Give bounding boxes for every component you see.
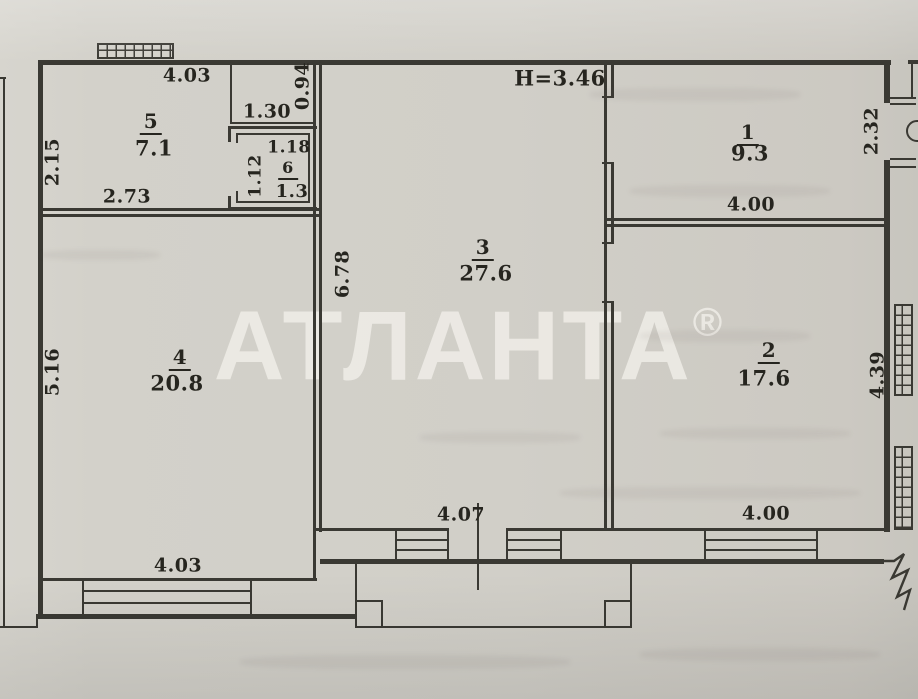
dim-room3-height: 6.78 (334, 250, 353, 298)
window-jamb (816, 528, 818, 564)
wall-notch-horizontal (0, 626, 38, 628)
window-glass-line (706, 549, 816, 551)
window-glass-line (508, 539, 560, 541)
room6-number: 6 (278, 160, 298, 180)
scan-smudge (420, 432, 580, 443)
window-glass-line (397, 539, 447, 541)
wall-leftcol-room3-a (313, 62, 316, 580)
room5-number: 5 (140, 111, 162, 135)
room3-number: 3 (472, 237, 494, 261)
scan-smudge (560, 487, 860, 499)
door-knob-symbol (906, 120, 918, 142)
dim-room4-bottom: 4.03 (154, 557, 202, 576)
scan-smudge (40, 250, 160, 260)
window-glass-line (84, 602, 250, 604)
dim-room6-width: 1.18 (267, 140, 310, 157)
watermark-text: АТЛАНТА (214, 291, 693, 401)
room6-wall-top (228, 126, 317, 129)
dim-room5-bottom: 2.73 (103, 188, 151, 207)
niche-left-line (230, 64, 232, 124)
wall-top-right-ext (908, 60, 918, 64)
wall-bottom-inner-b (506, 528, 884, 531)
window-glass-line (706, 539, 816, 541)
wall-room56-room4-b (41, 214, 321, 217)
right-window-stub (890, 103, 916, 105)
wall-right-lower (884, 160, 890, 532)
room6-inner-top (236, 133, 310, 135)
room3-area: 27.6 (459, 263, 512, 284)
dim-room6-height: 1.12 (248, 154, 265, 197)
dim-room3-bottom: 4.07 (437, 506, 485, 525)
dim-room1-right: 2.32 (863, 107, 882, 155)
neighbor-wall-vertical (3, 78, 5, 628)
ceiling-height-note: H=3.46 (514, 68, 606, 89)
room2-number: 2 (758, 340, 780, 364)
scan-smudge (590, 88, 800, 101)
room6-wall-left-upper (228, 126, 231, 142)
neighbor-wall-tick (0, 77, 6, 79)
room4-area: 20.8 (150, 373, 203, 394)
room2-area: 17.6 (737, 368, 790, 389)
balcony-bottom-edge (355, 626, 632, 628)
window-jamb (395, 528, 397, 564)
floor-plan-scan: АТЛАНТА® (0, 0, 918, 699)
scan-smudge (240, 655, 570, 669)
room5-area: 7.1 (135, 138, 173, 159)
wall-room3-rooms12-right-b (611, 163, 614, 243)
door-jamb-tick (602, 301, 614, 303)
room4-number: 4 (169, 347, 191, 371)
balcony-post-left (355, 600, 383, 628)
scan-smudge (630, 185, 830, 197)
vent-shaft-hatch (97, 43, 174, 59)
dim-top-width: 4.03 (163, 67, 211, 86)
door-jamb-tick (602, 162, 614, 164)
room6-area: 1.3 (276, 183, 309, 201)
scan-smudge (660, 428, 850, 439)
glazing-strip-upper (894, 304, 913, 396)
window-jamb (447, 528, 449, 564)
scan-smudge (640, 648, 880, 661)
right-window-stub (890, 158, 916, 160)
room6-inner-left-lower (236, 191, 238, 203)
dim-niche-depth: 0.94 (294, 62, 313, 110)
room1-area: 9.3 (731, 143, 769, 164)
right-window-stub (890, 166, 916, 168)
room6-wall-bottom (228, 207, 317, 210)
wall-room1-room2-a (607, 218, 884, 221)
window-glass-line (84, 590, 250, 592)
glazing-strip-lower (894, 446, 913, 530)
dim-room1-bottom: 4.00 (727, 196, 775, 215)
dim-room4-left: 5.16 (44, 348, 63, 396)
window-jamb (82, 578, 84, 619)
wall-bottom-inner-a (315, 528, 449, 531)
right-attachment-vertical (911, 60, 913, 99)
wall-room1-room2-b (607, 224, 884, 227)
wall-bottom-outer-left (36, 614, 357, 619)
window-jamb (560, 528, 562, 564)
agency-watermark: АТЛАНТА® (214, 290, 723, 403)
window-jamb (704, 528, 706, 564)
dim-room2-bottom: 4.00 (742, 505, 790, 524)
dim-niche-width: 1.30 (243, 103, 291, 122)
room6-inner-left-upper (236, 133, 238, 143)
wall-leftcol-room3-b (319, 62, 322, 532)
window-jamb (250, 578, 252, 619)
balcony-post-right (604, 600, 632, 628)
window-glass-line (397, 549, 447, 551)
dim-room5-left: 2.15 (44, 138, 63, 186)
wall-bottom-outer-right (320, 559, 884, 564)
dim-room2-right: 4.39 (869, 351, 888, 399)
wall-room3-rooms12-left (604, 62, 607, 530)
door-jamb-tick (602, 242, 614, 244)
room6-wall-left-lower (228, 196, 231, 210)
scan-smudge (640, 330, 810, 342)
window-glass-line (508, 549, 560, 551)
window-jamb (506, 528, 508, 564)
wall-break-symbol (884, 550, 918, 612)
